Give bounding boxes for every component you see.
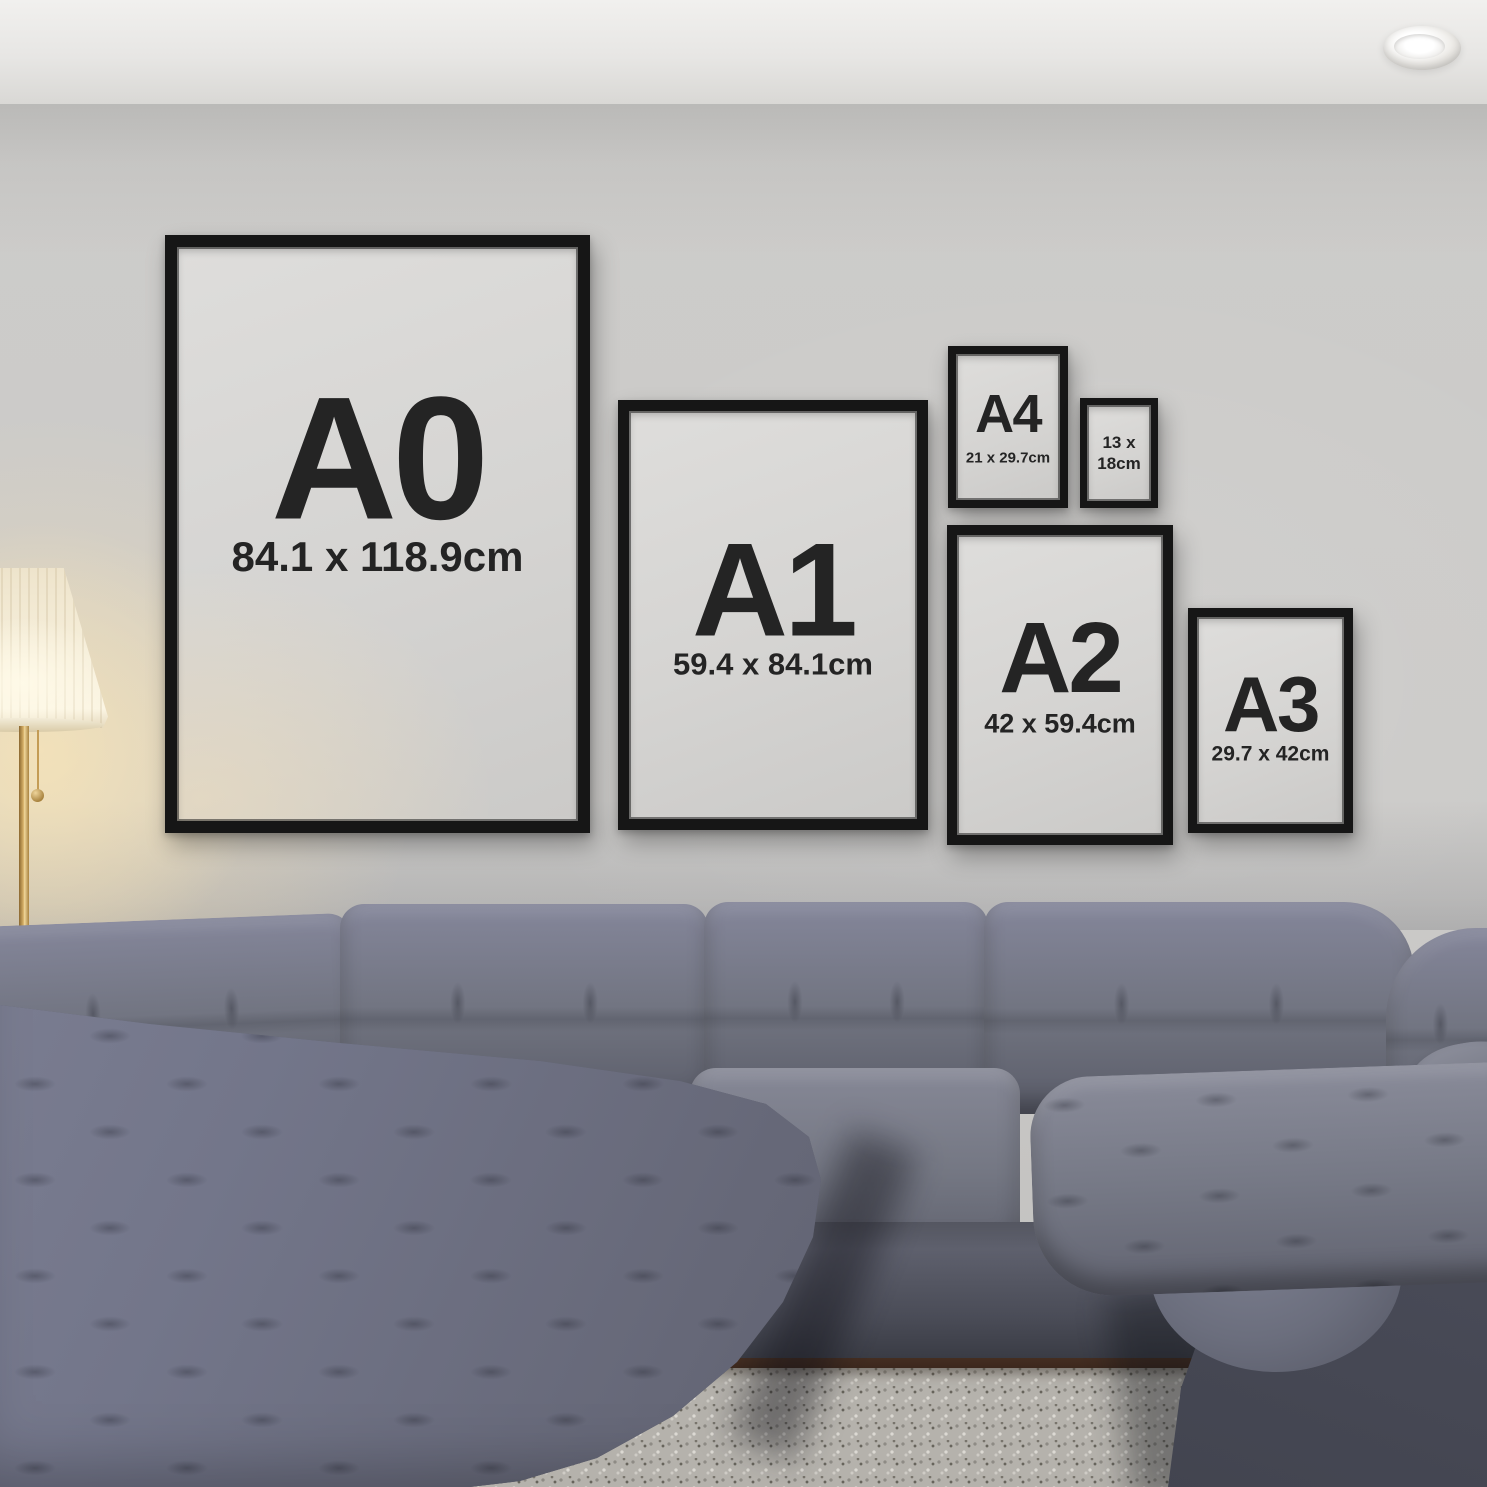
frame-a4-size: 21 x 29.7cm	[966, 450, 1050, 465]
lamp-pull-chain-ball	[31, 789, 44, 802]
frame-13x18: 13 x18cm	[1080, 398, 1158, 508]
recessed-ceiling-light	[1383, 26, 1461, 70]
frame-a2-size: 42 x 59.4cm	[984, 711, 1136, 738]
frame-a0-label: A0	[271, 372, 484, 547]
frame-a1: A1 59.4 x 84.1cm	[618, 400, 928, 830]
frame-a2: A2 42 x 59.4cm	[947, 525, 1173, 845]
frame-a3-size: 29.7 x 42cm	[1212, 743, 1330, 764]
frame-a3-label: A3	[1223, 665, 1318, 743]
frame-a4-label: A4	[975, 387, 1041, 441]
frame-13x18-size-line2: 18cm	[1097, 454, 1140, 473]
frame-a4: A4 21 x 29.7cm	[948, 346, 1068, 508]
frame-13x18-size: 13 x18cm	[1097, 432, 1140, 475]
frame-a1-size: 59.4 x 84.1cm	[673, 648, 873, 679]
lamp-pole	[19, 726, 29, 948]
frame-a0: A0 84.1 x 118.9cm	[165, 235, 590, 833]
ceiling	[0, 0, 1487, 104]
lamp-pull-chain	[37, 730, 39, 792]
sofa-right-chaise	[1028, 1062, 1487, 1299]
living-room-scene: A0 84.1 x 118.9cm A1 59.4 x 84.1cm A4 21…	[0, 0, 1487, 1487]
frame-13x18-size-line1: 13 x	[1102, 433, 1135, 452]
frame-a2-label: A2	[999, 608, 1121, 708]
frame-a1-label: A1	[692, 524, 854, 657]
frame-a0-size: 84.1 x 118.9cm	[232, 536, 524, 578]
frame-a3: A3 29.7 x 42cm	[1188, 608, 1353, 833]
